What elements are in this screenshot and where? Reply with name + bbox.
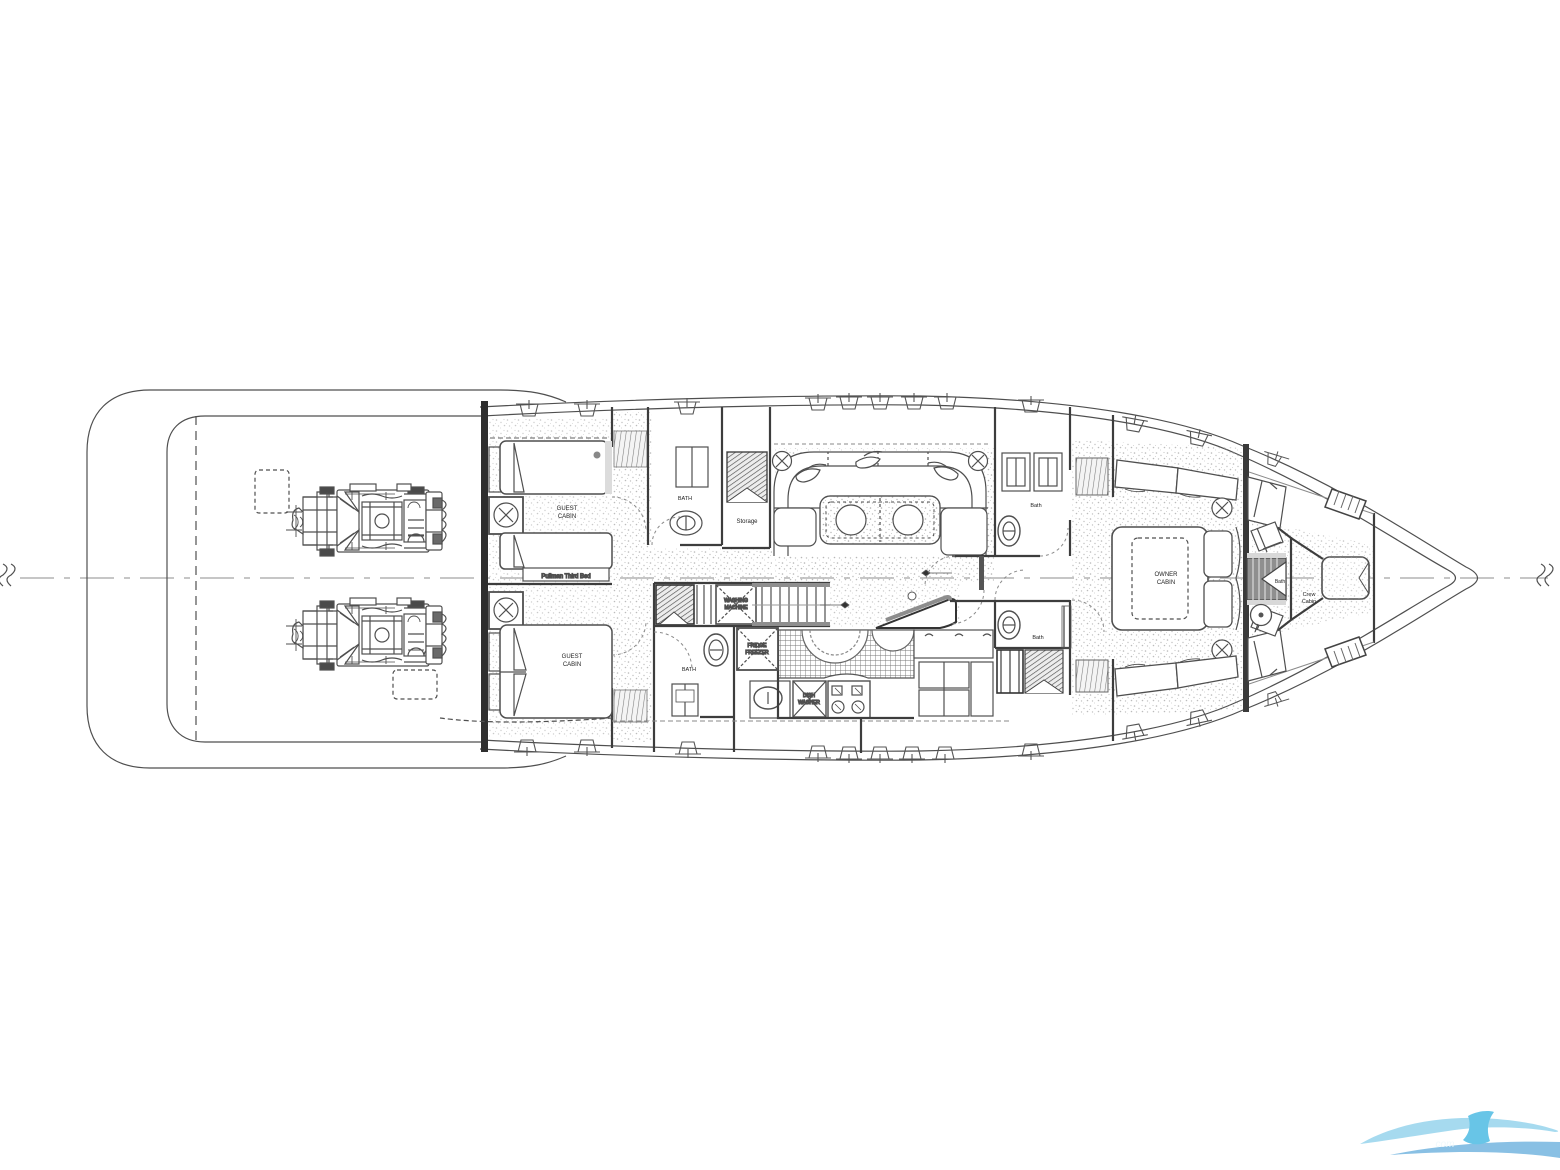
svg-text:DISH: DISH xyxy=(803,693,815,699)
svg-text:CABIN: CABIN xyxy=(563,662,581,668)
svg-text:BATH: BATH xyxy=(678,496,692,502)
svg-text:OWNER: OWNER xyxy=(1155,572,1179,578)
svg-text:com: com xyxy=(1436,1139,1455,1150)
svg-text:WASHING: WASHING xyxy=(724,598,748,604)
svg-text:Storage: Storage xyxy=(736,519,758,525)
svg-text:BATH: BATH xyxy=(682,667,696,673)
svg-text:Bath: Bath xyxy=(1030,503,1041,509)
svg-text:Cabin: Cabin xyxy=(1302,599,1316,605)
svg-text:Pullman Third Bed: Pullman Third Bed xyxy=(541,574,590,580)
svg-text:WASHER: WASHER xyxy=(798,700,820,706)
svg-text:Crew: Crew xyxy=(1303,592,1316,598)
svg-text:Bath: Bath xyxy=(1275,579,1286,585)
svg-text:Bath: Bath xyxy=(1032,635,1043,641)
svg-text:MACHINE: MACHINE xyxy=(724,605,748,611)
svg-text:CABIN: CABIN xyxy=(558,514,576,520)
svg-text:FREEZER: FREEZER xyxy=(745,650,769,656)
svg-text:CABIN: CABIN xyxy=(1157,580,1175,586)
svg-text:GUEST: GUEST xyxy=(557,506,578,512)
svg-text:FRIDGE: FRIDGE xyxy=(748,643,768,649)
svg-text:GUEST: GUEST xyxy=(562,654,583,660)
